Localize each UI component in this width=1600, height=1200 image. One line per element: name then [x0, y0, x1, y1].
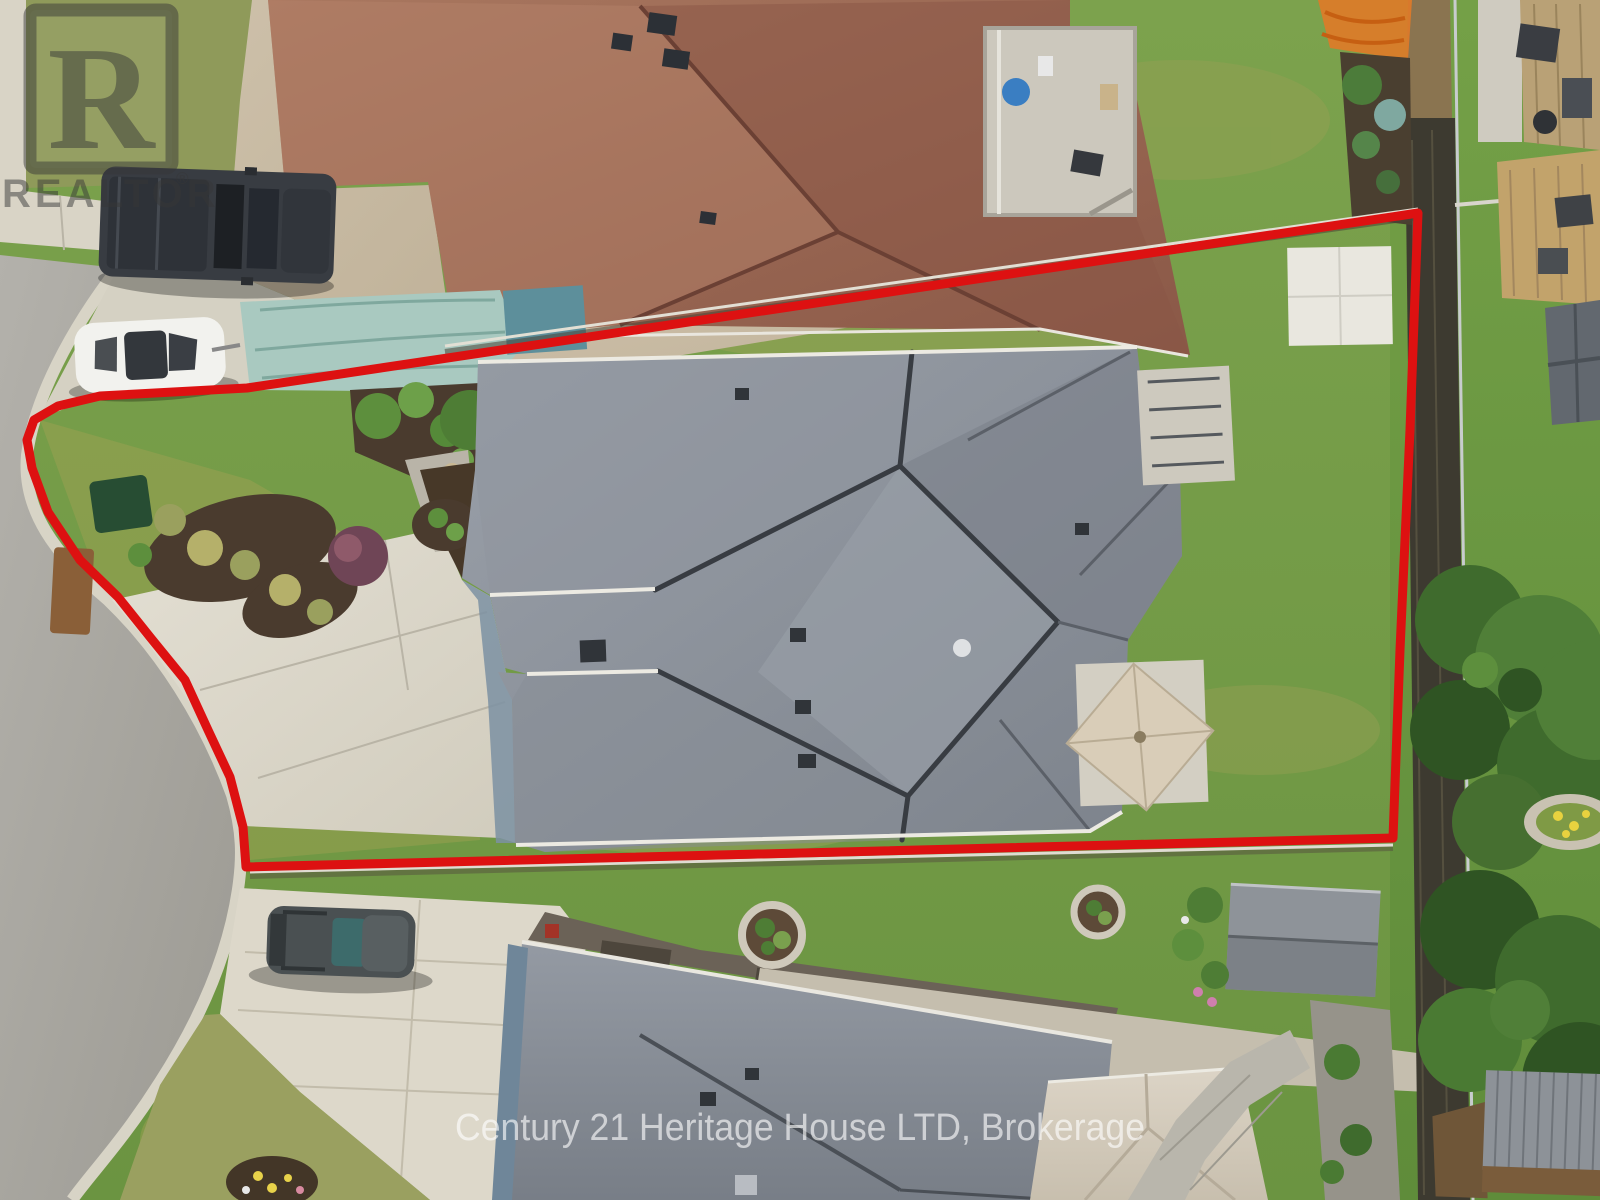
pool-float [1002, 78, 1030, 106]
neighbor-deck-mid [1497, 150, 1600, 305]
round-garden-bed-2 [1074, 888, 1122, 936]
neighbor-balcony [985, 28, 1135, 215]
round-vent [953, 639, 971, 657]
skylight [735, 1175, 757, 1195]
red-grill [545, 924, 559, 938]
covered-garden-box [89, 474, 154, 534]
subject-house-roof [462, 347, 1182, 852]
suv [248, 905, 435, 996]
gravel-side-path [1310, 1000, 1400, 1200]
realtor-logo-letter: R [48, 17, 157, 181]
neighbor-deck-top-right [1478, 0, 1600, 150]
brokerage-watermark: Century 21 Heritage House LTD, Brokerage [455, 1107, 1145, 1149]
wood-board [50, 547, 94, 635]
backyard-concrete-pad [1287, 246, 1393, 346]
aerial-photo-canvas: R REALTOR ® Century 21 Heritage House LT… [0, 0, 1600, 1200]
garden-shed [1225, 884, 1380, 997]
neighbor-gazebo [1545, 300, 1600, 425]
listing-aerial-photo: R REALTOR ® Century 21 Heritage House LT… [0, 0, 1600, 1200]
registered-trademark-symbol: ® [176, 169, 193, 188]
backyard-patio [1137, 366, 1235, 486]
round-garden-bed-1 [742, 905, 802, 965]
